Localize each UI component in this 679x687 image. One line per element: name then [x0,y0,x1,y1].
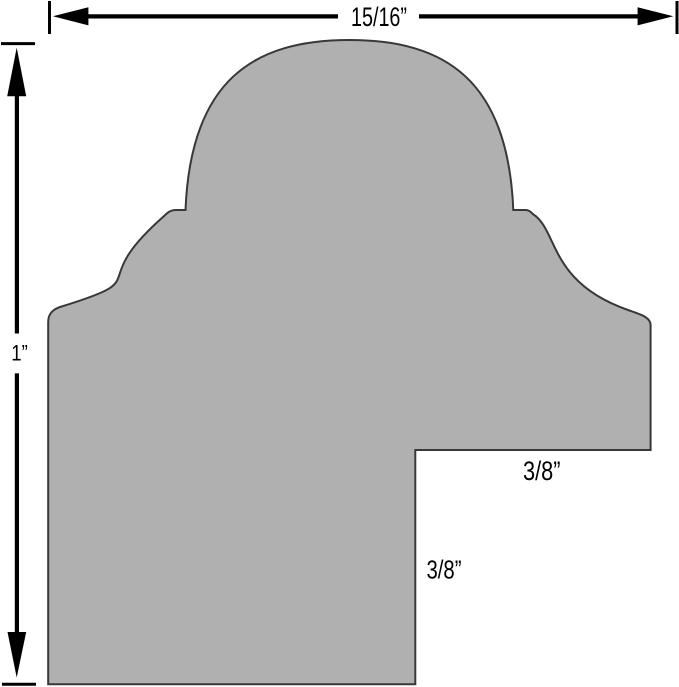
svg-text:1”: 1” [11,341,28,366]
svg-text:15/16”: 15/16” [351,2,407,32]
svg-text:3/8”: 3/8” [523,456,561,486]
svg-text:3/8”: 3/8” [427,554,462,584]
